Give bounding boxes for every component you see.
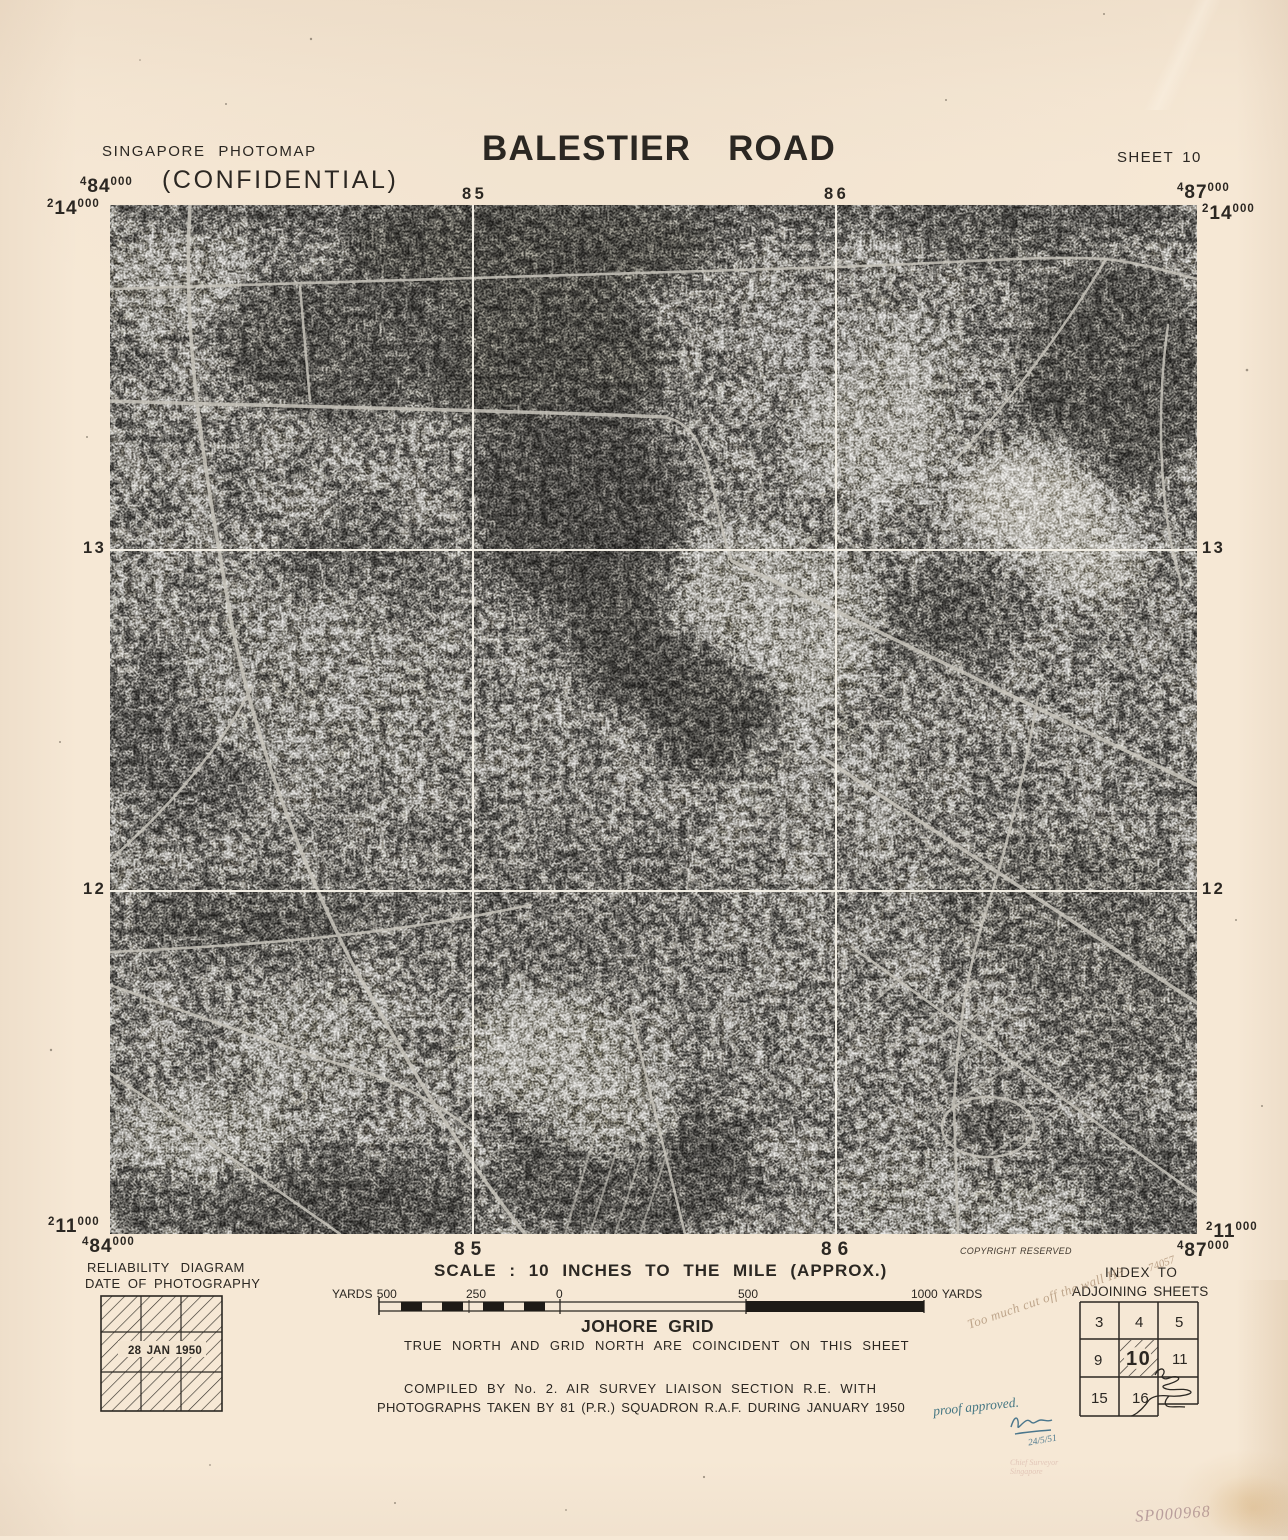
svg-text:15: 15 [1091, 1390, 1108, 1407]
svg-text:3: 3 [1095, 1314, 1103, 1331]
svg-text:4: 4 [1135, 1314, 1143, 1331]
svg-text:11: 11 [1172, 1351, 1188, 1368]
svg-text:10: 10 [1126, 1348, 1151, 1370]
svg-text:5: 5 [1175, 1314, 1183, 1331]
svg-text:9: 9 [1094, 1352, 1102, 1369]
